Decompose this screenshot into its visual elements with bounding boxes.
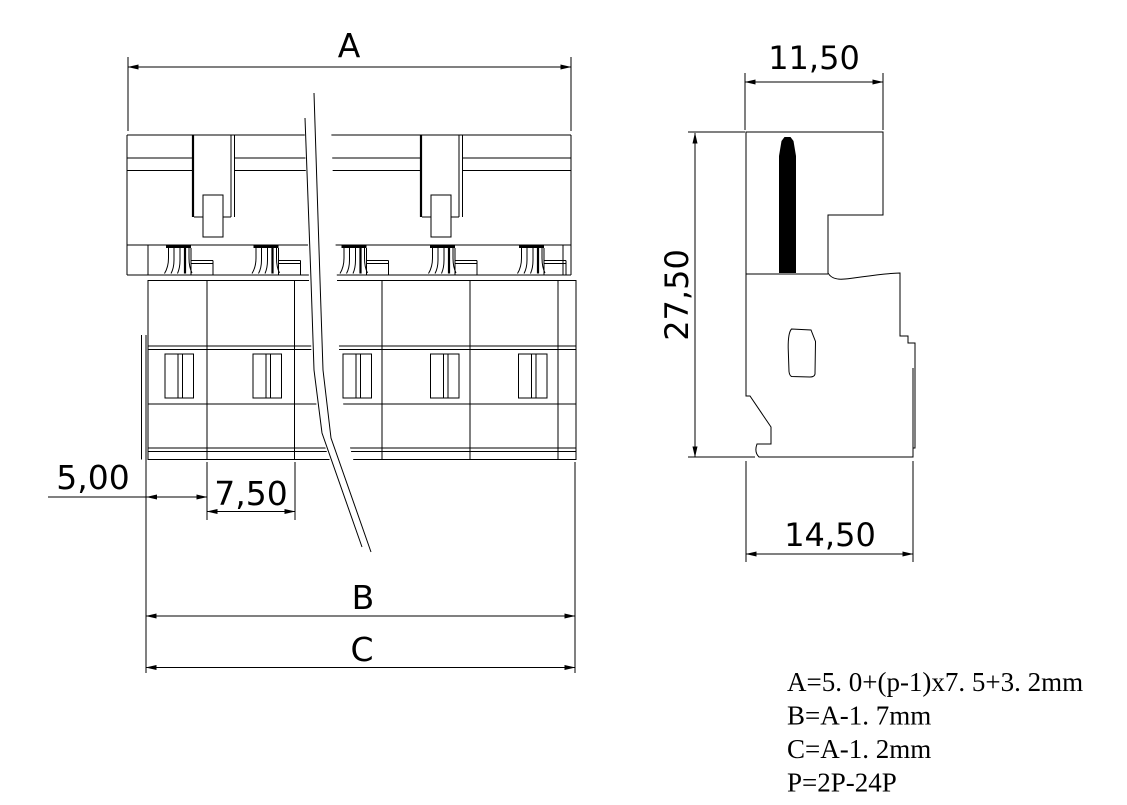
dim-label-5: 5,00: [56, 458, 129, 497]
side-extension-lines: [688, 73, 913, 562]
dim-label-7-5: 7,50: [214, 474, 287, 513]
side-dimensions: 11,50 27,50 14,50: [658, 39, 913, 562]
foot-bar-3: [342, 245, 367, 248]
formula-p: P=2P-24P: [787, 768, 897, 798]
foot-bar-5: [519, 245, 544, 248]
terminal-window-4: [431, 354, 460, 398]
contact-pin: [779, 137, 796, 273]
latch-tab-1: [203, 195, 223, 237]
formula-notes: A=5. 0+(p-1)x7. 5+3. 2mm B=A-1. 7mm C=A-…: [787, 667, 1083, 798]
technical-drawing: A 5,00 7,50 B C 11,50 27,50 14,50 A=5. 0…: [0, 0, 1127, 805]
side-view: [746, 132, 915, 457]
foot-legs-1: [165, 248, 193, 274]
dim-label-14-5: 14,50: [784, 516, 876, 554]
foot-bar-4: [430, 245, 455, 248]
terminal-body: [142, 281, 577, 460]
dim-label-C: C: [350, 630, 373, 669]
terminal-window-1: [165, 354, 194, 398]
body-horizontals: [148, 346, 576, 452]
foot-legs-3: [340, 248, 368, 274]
dim-label-27-5: 27,50: [658, 249, 696, 341]
foot-bar-2: [254, 245, 279, 248]
drawing-sheet: A 5,00 7,50 B C 11,50 27,50 14,50 A=5. 0…: [0, 0, 1127, 805]
foot-legs-4: [429, 248, 457, 274]
terminal-window-3: [343, 354, 372, 398]
foot-bar-1: [166, 245, 191, 248]
contact-feet-band: [127, 245, 571, 275]
formula-c: C=A-1. 2mm: [787, 734, 931, 764]
foot-notch-2: [279, 248, 301, 275]
formula-a: A=5. 0+(p-1)x7. 5+3. 2mm: [787, 667, 1083, 697]
dim-label-A: A: [338, 26, 361, 65]
body-dividers: [207, 281, 558, 460]
foot-legs-2: [252, 248, 280, 274]
latch-tab-2: [431, 195, 451, 237]
dim-label-B: B: [352, 578, 375, 617]
foot-notch-1: [191, 248, 213, 275]
terminal-window-2: [253, 354, 282, 398]
side-outline: [746, 132, 915, 457]
terminal-window-5: [519, 354, 548, 398]
dim-label-11-5: 11,50: [768, 39, 860, 77]
foot-notch-4: [455, 248, 477, 275]
break-gap: [304, 96, 378, 552]
side-pocket: [788, 329, 815, 377]
front-view: [127, 93, 576, 552]
formula-b: B=A-1. 7mm: [787, 701, 931, 731]
foot-legs-5: [518, 248, 546, 274]
foot-notch-3: [367, 248, 389, 275]
